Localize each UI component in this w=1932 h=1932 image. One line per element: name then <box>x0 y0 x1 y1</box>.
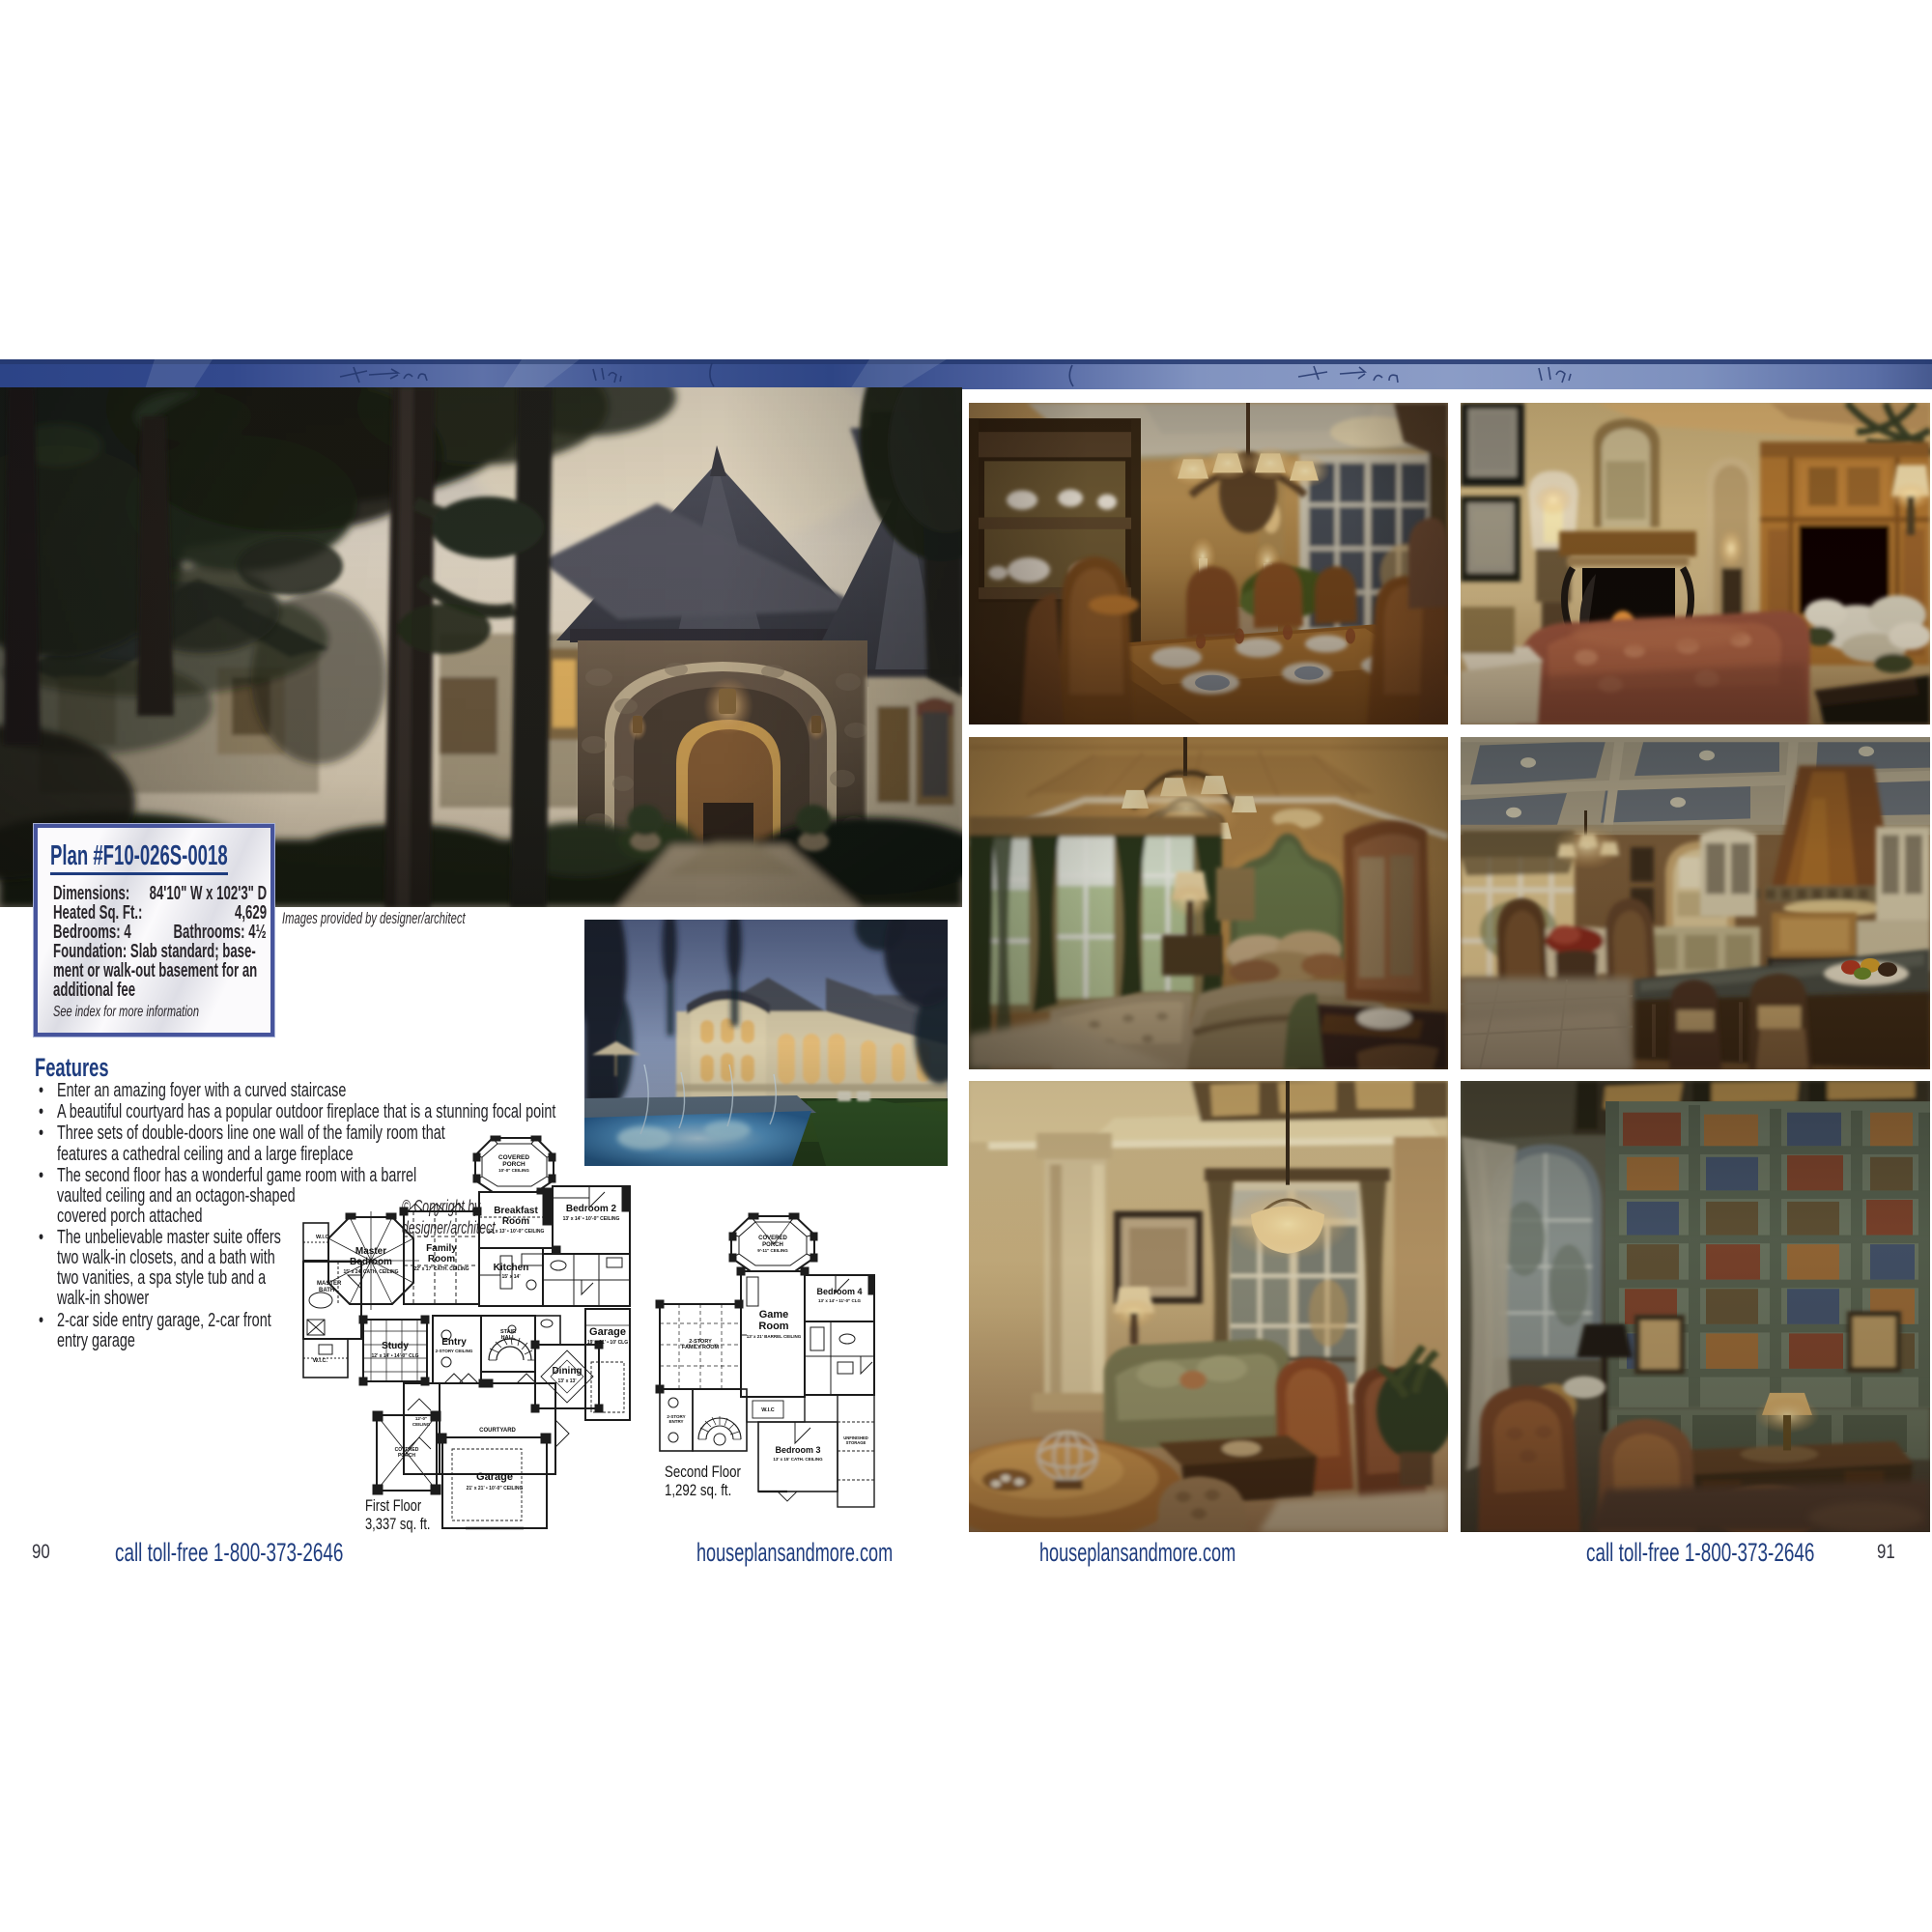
svg-text:Room: Room <box>758 1321 788 1332</box>
svg-text:12' x 13' • 10'-0" CEILING: 12' x 13' • 10'-0" CEILING <box>488 1229 545 1235</box>
svg-text:PORCH: PORCH <box>398 1453 415 1459</box>
svg-text:HALL: HALL <box>501 1335 516 1341</box>
svg-text:21' x 21' • 10'-0" CEILING: 21' x 21' • 10'-0" CEILING <box>467 1486 524 1492</box>
svg-text:Study: Study <box>382 1341 409 1351</box>
svg-text:Room: Room <box>502 1216 529 1227</box>
svg-text:Entry: Entry <box>441 1337 467 1348</box>
svg-text:W.I.C: W.I.C <box>761 1407 774 1413</box>
svg-text:Kitchen: Kitchen <box>494 1263 529 1273</box>
svg-text:COVERED: COVERED <box>758 1236 787 1241</box>
svg-text:13' x 14' • 10'-0" CEILING: 13' x 14' • 10'-0" CEILING <box>563 1216 620 1222</box>
svg-text:Master: Master <box>355 1246 386 1257</box>
svg-text:13' x 15' CATH. CEILING: 13' x 15' CATH. CEILING <box>773 1457 823 1462</box>
svg-text:PORCH: PORCH <box>502 1161 526 1168</box>
svg-text:Garage: Garage <box>476 1471 513 1483</box>
svg-text:Dining: Dining <box>552 1366 582 1377</box>
svg-text:Bedroom 4: Bedroom 4 <box>816 1287 862 1296</box>
svg-text:Garage: Garage <box>589 1326 626 1338</box>
svg-text:12' x 14' • 14'-0" CLG: 12' x 14' • 14'-0" CLG <box>371 1353 418 1359</box>
svg-text:Room: Room <box>428 1254 455 1264</box>
svg-text:15' x 24' CATH. CEILING: 15' x 24' CATH. CEILING <box>343 1269 398 1275</box>
svg-text:CEILING: CEILING <box>412 1422 431 1427</box>
svg-text:Bedroom 3: Bedroom 3 <box>775 1445 820 1455</box>
svg-text:22' x 17' CATH. CEILING: 22' x 17' CATH. CEILING <box>413 1266 469 1272</box>
svg-text:COVERED: COVERED <box>498 1154 529 1161</box>
svg-text:10'-0" CEILING: 10'-0" CEILING <box>498 1168 529 1173</box>
svg-text:15' x 14': 15' x 14' <box>501 1274 520 1280</box>
svg-text:W.I.C.: W.I.C. <box>313 1358 327 1364</box>
svg-text:13' x 14' • 11'-0" CLG: 13' x 14' • 11'-0" CLG <box>818 1298 861 1303</box>
svg-text:19' x 21' • 10' CLG: 19' x 21' • 10' CLG <box>587 1340 628 1346</box>
svg-text:2-STORY CEILING: 2-STORY CEILING <box>436 1349 473 1353</box>
svg-text:12'-0": 12'-0" <box>415 1416 427 1421</box>
svg-text:STORAGE: STORAGE <box>846 1440 867 1445</box>
svg-text:ENTRY: ENTRY <box>668 1419 683 1424</box>
svg-text:Family: Family <box>426 1243 457 1254</box>
svg-text:Bedroom: Bedroom <box>350 1257 392 1267</box>
svg-text:W.I.C.: W.I.C. <box>316 1235 330 1240</box>
svg-text:Breakfast: Breakfast <box>494 1206 538 1216</box>
svg-text:FAMILY ROOM: FAMILY ROOM <box>682 1345 720 1350</box>
svg-text:9'-11" CEILING: 9'-11" CEILING <box>757 1248 788 1253</box>
svg-text:MASTER: MASTER <box>317 1281 342 1287</box>
svg-text:13' x 13': 13' x 13' <box>557 1378 576 1384</box>
svg-text:Bedroom 2: Bedroom 2 <box>566 1204 617 1214</box>
svg-text:13' x 21' BARREL CEILING: 13' x 21' BARREL CEILING <box>747 1334 802 1339</box>
svg-text:Game: Game <box>759 1309 789 1321</box>
svg-text:BATH: BATH <box>319 1288 334 1293</box>
svg-text:COURTYARD: COURTYARD <box>479 1428 516 1434</box>
